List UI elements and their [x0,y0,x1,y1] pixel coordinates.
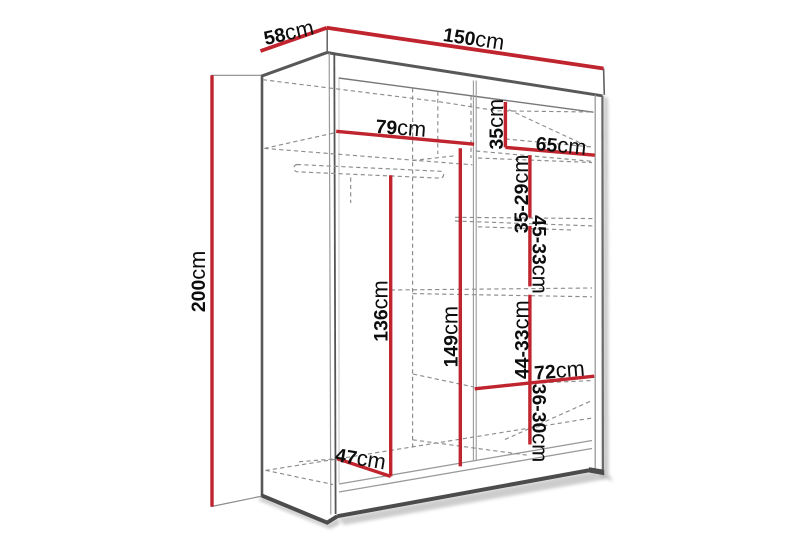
svg-text:150cm: 150cm [442,21,506,55]
svg-text:79cm: 79cm [375,113,427,142]
svg-text:200cm: 200cm [185,251,210,312]
svg-text:58cm: 58cm [261,15,316,50]
svg-text:136cm: 136cm [368,280,393,341]
svg-text:47cm: 47cm [334,441,388,474]
svg-text:44-33cm: 44-33cm [508,300,533,379]
svg-text:65cm: 65cm [535,130,588,160]
svg-text:36-30cm: 36-30cm [527,384,552,463]
svg-text:45-33cm: 45-33cm [527,215,552,294]
svg-text:149cm: 149cm [437,306,462,367]
svg-text:35cm: 35cm [483,99,508,150]
svg-text:72cm: 72cm [533,356,585,385]
